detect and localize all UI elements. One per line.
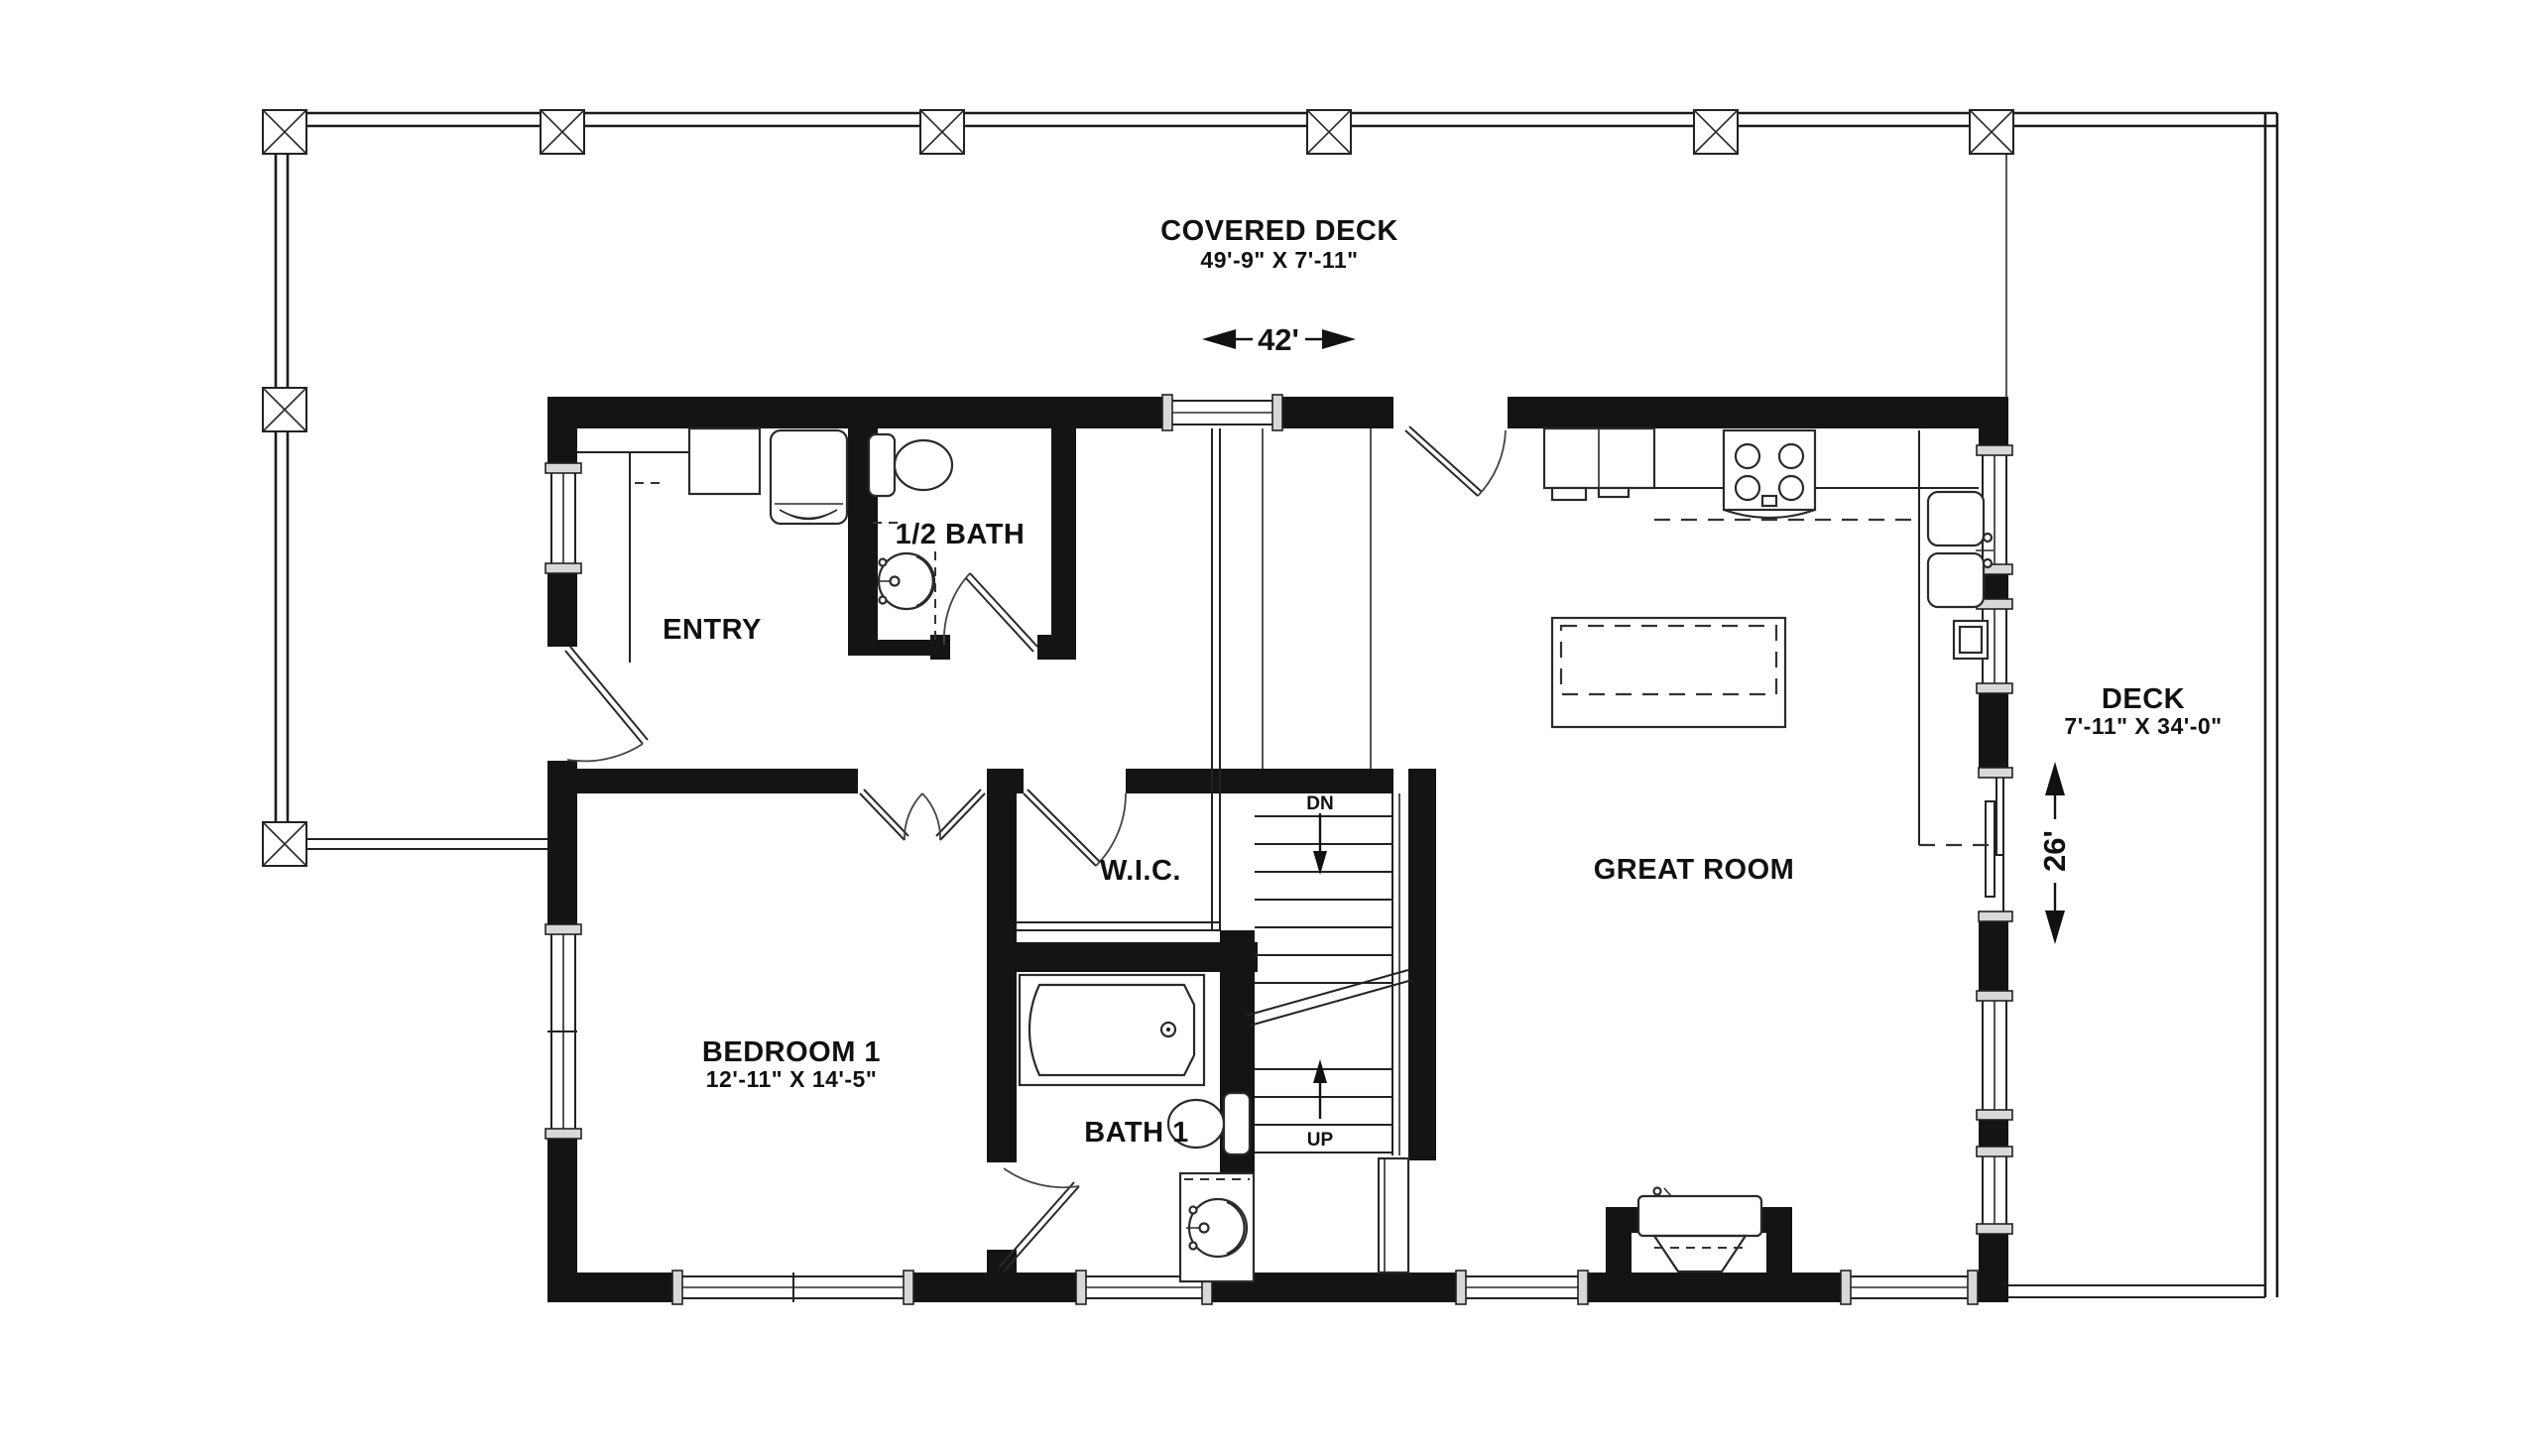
vanity-sink-icon bbox=[1180, 1173, 1254, 1281]
window bbox=[1977, 991, 2012, 1120]
entry-cabinet bbox=[689, 428, 760, 494]
bedroom1-dims: 12'-11" X 14'-5" bbox=[706, 1066, 877, 1092]
floor-plan-drawing: COVERED DECK 49'-9" X 7'-11" DECK 7'-11"… bbox=[0, 0, 2539, 1456]
window bbox=[1841, 1271, 1978, 1304]
dishwasher-icon bbox=[1954, 621, 1988, 659]
exterior-walls bbox=[547, 397, 2008, 1302]
bedroom-double-doors bbox=[860, 789, 985, 840]
utility-niche bbox=[1606, 1188, 1792, 1284]
depth-dim-label: 26' bbox=[2037, 830, 2072, 872]
utility-sink-icon bbox=[1638, 1188, 1761, 1273]
entry-label: ENTRY bbox=[663, 614, 762, 646]
bathtub-icon bbox=[1020, 975, 1204, 1085]
width-dimension: 42' bbox=[1202, 322, 1356, 357]
post-icon bbox=[1970, 110, 2013, 154]
window bbox=[1162, 395, 1282, 430]
post-icon bbox=[263, 822, 306, 866]
window bbox=[545, 463, 581, 573]
width-dim-label: 42' bbox=[1258, 322, 1299, 357]
water-heater bbox=[771, 430, 847, 524]
post-icon bbox=[1307, 110, 1351, 154]
floor-plan-page: COVERED DECK 49'-9" X 7'-11" DECK 7'-11"… bbox=[0, 0, 2539, 1456]
range-icon bbox=[1724, 430, 1815, 518]
covered-deck-dims: 49'-9" X 7'-11" bbox=[1200, 247, 1358, 273]
stairs-dn-label: DN bbox=[1306, 793, 1333, 814]
wic-label: W.I.C. bbox=[1100, 855, 1181, 887]
kitchen bbox=[1544, 428, 1994, 845]
depth-dimension: 26' bbox=[2037, 762, 2072, 944]
half-bath-label: 1/2 BATH bbox=[896, 519, 1026, 550]
window bbox=[545, 924, 581, 1139]
entry-door bbox=[565, 647, 648, 761]
great-room-label: GREAT ROOM bbox=[1594, 854, 1795, 886]
kitchen-deck-door bbox=[1405, 426, 1506, 496]
deck-dims: 7'-11" X 34'-0" bbox=[2064, 713, 2222, 739]
toilet-icon bbox=[869, 434, 952, 496]
half-bath-door bbox=[944, 573, 1037, 652]
post-icon bbox=[920, 110, 964, 154]
window bbox=[672, 1271, 913, 1304]
window bbox=[1456, 1271, 1588, 1304]
window bbox=[1977, 1147, 2012, 1234]
covered-deck-label: COVERED DECK bbox=[1160, 215, 1398, 247]
bedroom1-label: BEDROOM 1 bbox=[702, 1036, 881, 1068]
sink-icon bbox=[877, 553, 934, 609]
post-icon bbox=[541, 110, 584, 154]
stair-treads-down bbox=[1255, 816, 1392, 983]
post-icon bbox=[1694, 110, 1738, 154]
post-icon bbox=[263, 388, 306, 431]
deck-label: DECK bbox=[2102, 683, 2185, 715]
bath1-label: BATH 1 bbox=[1084, 1117, 1189, 1149]
windows bbox=[545, 395, 2012, 1304]
under-stair-cabinet bbox=[1379, 1158, 1408, 1273]
refrigerator-icon bbox=[1544, 428, 1654, 500]
post-icon bbox=[263, 110, 306, 154]
stairs-up-label: UP bbox=[1307, 1130, 1334, 1151]
kitchen-island-icon bbox=[1552, 618, 1785, 727]
